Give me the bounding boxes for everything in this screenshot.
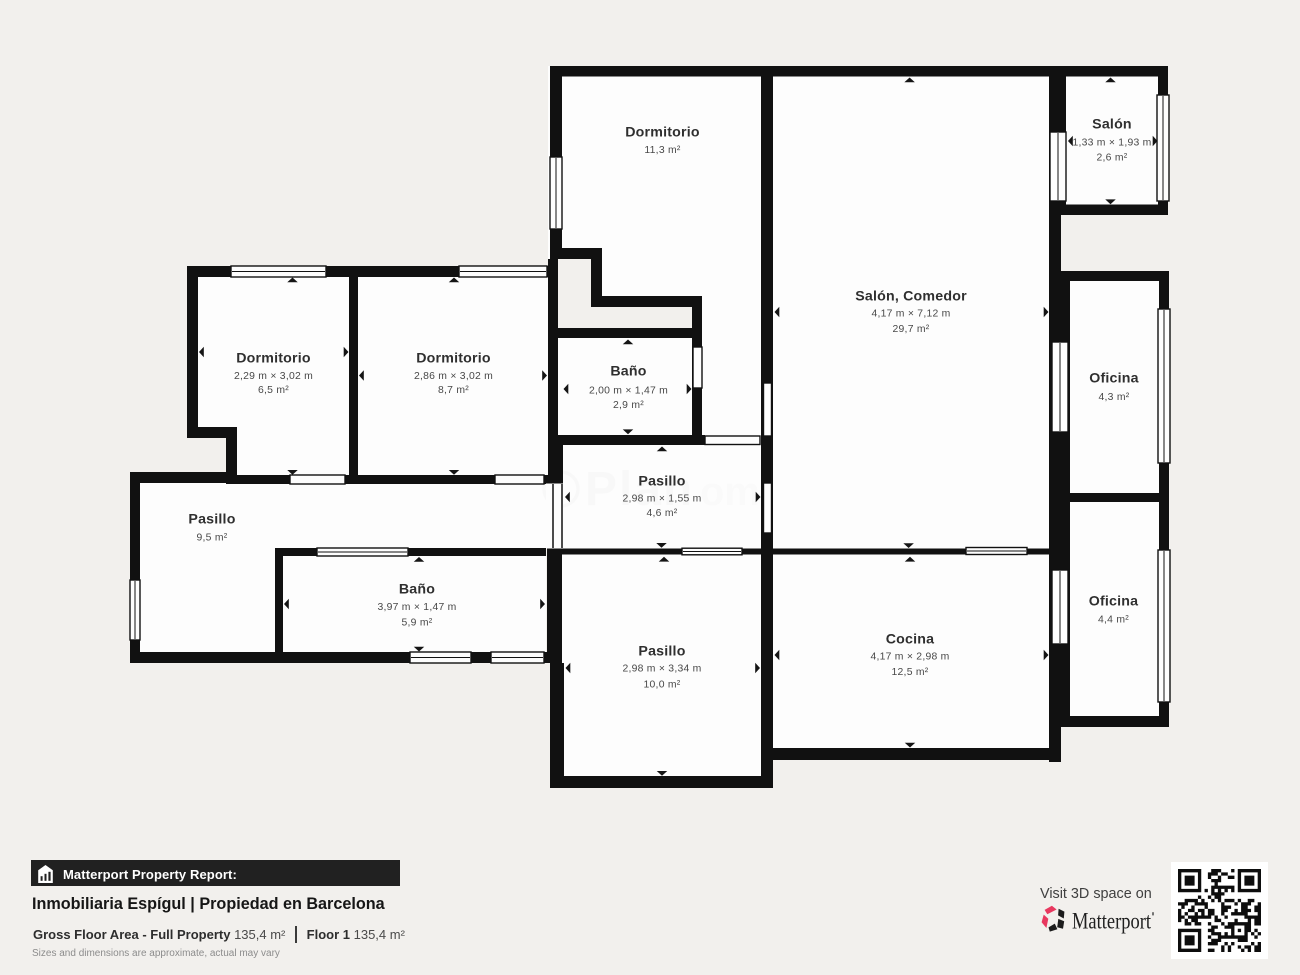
svg-text:3,97 m × 1,47 m: 3,97 m × 1,47 m (377, 602, 456, 613)
svg-text:Baño: Baño (610, 364, 646, 380)
svg-text:Plan: Plan (585, 463, 694, 516)
svg-text:11,3 m²: 11,3 m² (644, 145, 680, 156)
svg-text:2,00 m × 1,47 m: 2,00 m × 1,47 m (589, 386, 668, 397)
svg-text:Pasillo: Pasillo (188, 512, 235, 528)
svg-text:Oficina: Oficina (1089, 371, 1139, 387)
svg-text:om: om (700, 470, 760, 514)
svg-text:Oficina: Oficina (1089, 594, 1139, 610)
svg-text:4,17 m × 7,12 m: 4,17 m × 7,12 m (871, 309, 950, 320)
svg-text:12,5 m²: 12,5 m² (892, 667, 929, 678)
svg-text:Salón: Salón (1092, 117, 1132, 133)
svg-text:2,86 m × 3,02 m: 2,86 m × 3,02 m (414, 371, 493, 382)
svg-text:4,4 m²: 4,4 m² (1098, 615, 1129, 626)
svg-text:Pasillo: Pasillo (638, 644, 685, 660)
svg-text:10,0 m²: 10,0 m² (644, 680, 681, 691)
svg-text:Baño: Baño (399, 582, 435, 598)
svg-text:Cocina: Cocina (886, 632, 935, 648)
svg-text:Salón, Comedor: Salón, Comedor (855, 289, 967, 305)
svg-text:2,98 m × 3,34 m: 2,98 m × 3,34 m (622, 664, 701, 675)
svg-text:4,3 m²: 4,3 m² (1099, 392, 1130, 403)
svg-text:5,9 m²: 5,9 m² (402, 618, 433, 629)
svg-text:2,29 m × 3,02 m: 2,29 m × 3,02 m (234, 371, 313, 382)
svg-text:Dormitorio: Dormitorio (416, 351, 491, 367)
svg-text:4,17 m × 2,98 m: 4,17 m × 2,98 m (870, 652, 949, 663)
svg-text:6,5 m²: 6,5 m² (258, 385, 289, 396)
svg-text:8,7 m²: 8,7 m² (438, 385, 469, 396)
svg-text:Dormitorio: Dormitorio (236, 351, 311, 367)
svg-text:Matterport: Matterport (1072, 909, 1151, 934)
svg-text:29,7 m²: 29,7 m² (893, 324, 930, 335)
svg-text:Dormitorio: Dormitorio (625, 125, 700, 141)
svg-text:2,9 m²: 2,9 m² (613, 400, 644, 411)
svg-text:Pasillo: Pasillo (638, 474, 685, 490)
svg-text:4,6 m²: 4,6 m² (647, 508, 678, 519)
svg-text:1,33 m × 1,93 m: 1,33 m × 1,93 m (1072, 138, 1151, 149)
svg-text:2,98 m × 1,55 m: 2,98 m × 1,55 m (622, 494, 701, 505)
svg-text:2,6 m²: 2,6 m² (1097, 153, 1128, 164)
svg-text:9,5 m²: 9,5 m² (197, 533, 228, 544)
